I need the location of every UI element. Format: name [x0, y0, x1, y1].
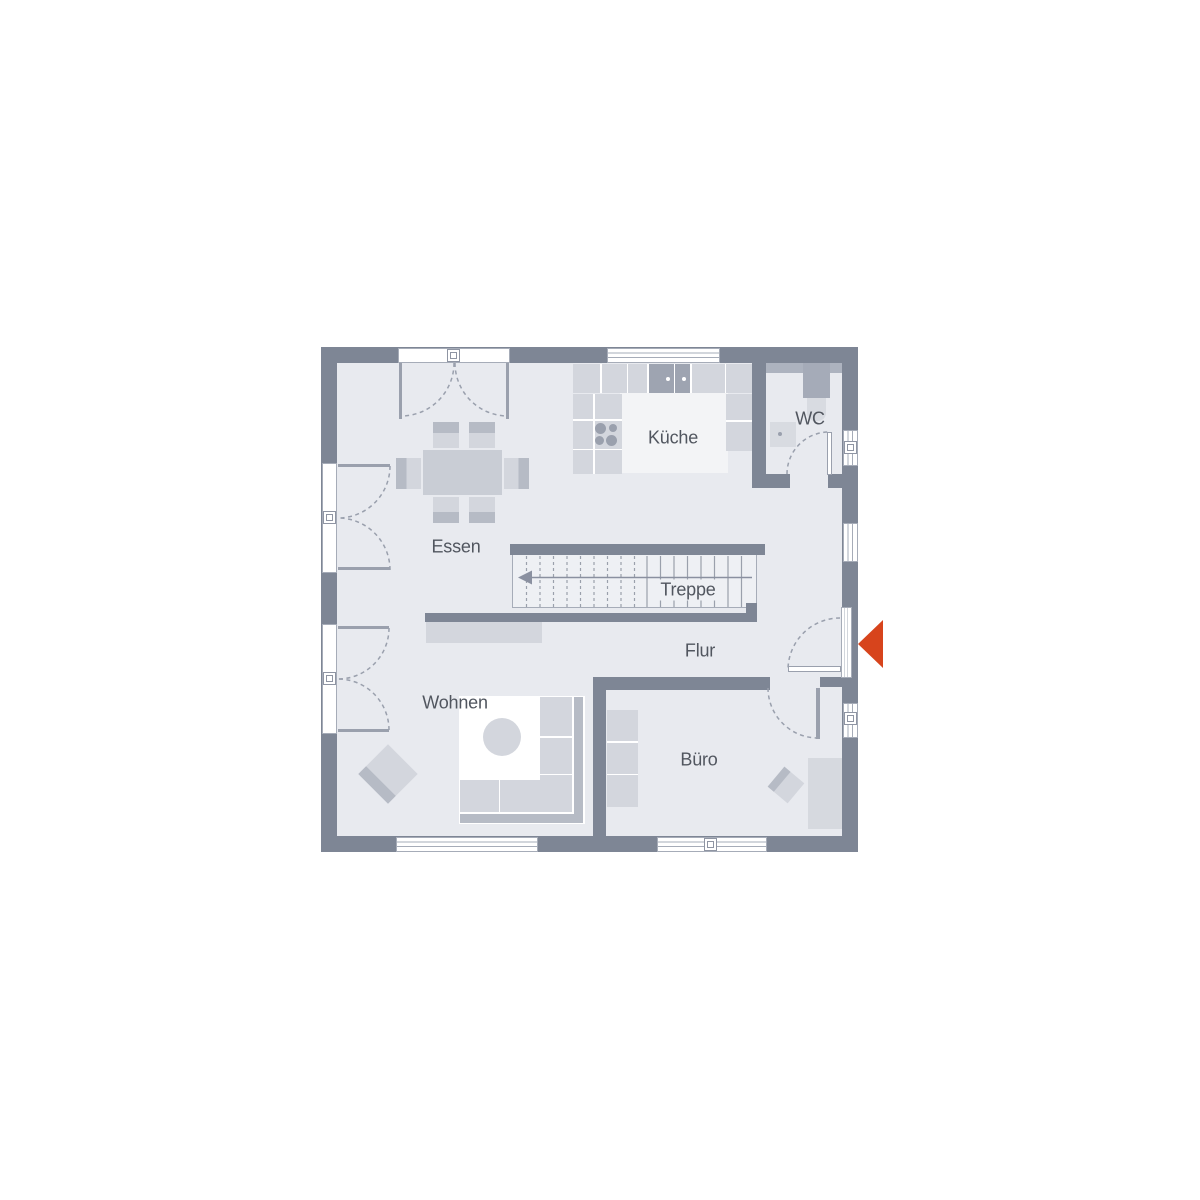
dining-chair	[469, 497, 495, 523]
sofa-backrest	[460, 814, 583, 823]
office-shelf	[607, 710, 638, 807]
wall-left	[321, 347, 337, 852]
sofa-seat	[540, 697, 572, 736]
sideboard	[426, 622, 542, 643]
staircase-area	[512, 555, 757, 608]
wall-under-stairs-step	[746, 603, 757, 622]
sofa-backrest	[574, 697, 584, 822]
floorplan-canvas: Küche WC Essen Treppe Flur Wohnen Büro	[0, 0, 1200, 1200]
room-label-buero: Büro	[680, 750, 717, 771]
room-label-essen: Essen	[431, 537, 480, 558]
room-label-kueche: Küche	[648, 428, 698, 449]
kitchen-counter-top	[573, 364, 755, 393]
french-door-leaf	[506, 363, 509, 419]
living-room-window	[396, 837, 538, 852]
wall-under-stairs	[425, 613, 757, 622]
french-door-leaf	[338, 567, 390, 570]
wall-office-left	[593, 677, 606, 836]
french-door-leaf	[338, 464, 390, 467]
wall-right	[842, 347, 858, 852]
dining-chair	[433, 497, 459, 523]
washbasin	[770, 422, 796, 447]
dining-chair	[396, 458, 421, 489]
french-door-leaf	[338, 626, 389, 629]
door-handle-icon	[447, 349, 460, 362]
kitchen-counter-right	[726, 394, 755, 451]
wall-wc-stub	[828, 474, 842, 488]
door-handle-icon	[323, 511, 336, 524]
sofa-seat	[540, 738, 572, 774]
entrance-door-leaf	[788, 666, 841, 672]
washbasin-drain	[778, 432, 782, 436]
wall-entrance-stub	[820, 677, 842, 687]
cooktop-burner	[609, 424, 617, 432]
room-label-wohnen: Wohnen	[422, 693, 488, 714]
dining-chair	[469, 422, 495, 448]
sofa-seat	[460, 780, 499, 812]
wall-kitchen-wc	[752, 363, 766, 488]
room-label-wc: WC	[795, 409, 825, 430]
room-label-flur: Flur	[685, 641, 715, 662]
sofa-seat	[540, 775, 572, 812]
french-door-leaf	[338, 729, 389, 732]
cooktop-burner	[595, 423, 606, 434]
window-handle-icon	[704, 838, 717, 851]
cooktop-burner	[606, 435, 617, 446]
dining-table	[423, 450, 502, 495]
door-handle-icon	[323, 672, 336, 685]
wc-door-leaf	[827, 432, 832, 475]
wall-wc-bottom	[752, 474, 790, 488]
room-label-treppe: Treppe	[657, 580, 718, 601]
wall-office-top	[593, 677, 770, 690]
dining-chair	[504, 458, 529, 489]
cooktop-burner	[595, 436, 604, 445]
entrance-arrow-icon	[858, 620, 883, 668]
sofa-seat	[500, 780, 540, 812]
wall-staircase-top	[510, 544, 765, 555]
french-door-leaf	[399, 363, 402, 419]
kitchen-counter-left	[573, 394, 622, 474]
sink-drain	[666, 377, 670, 381]
window-handle-icon	[844, 441, 857, 454]
kitchen-window	[607, 348, 720, 363]
entrance-door-frame	[841, 607, 852, 678]
narrow-window	[843, 523, 858, 562]
toilet-tank	[803, 363, 830, 398]
sink-drain	[682, 377, 686, 381]
coffee-table	[483, 718, 521, 756]
office-door-leaf	[816, 688, 820, 739]
window-handle-icon	[844, 712, 857, 725]
dining-chair	[433, 422, 459, 448]
daybed	[808, 758, 842, 829]
